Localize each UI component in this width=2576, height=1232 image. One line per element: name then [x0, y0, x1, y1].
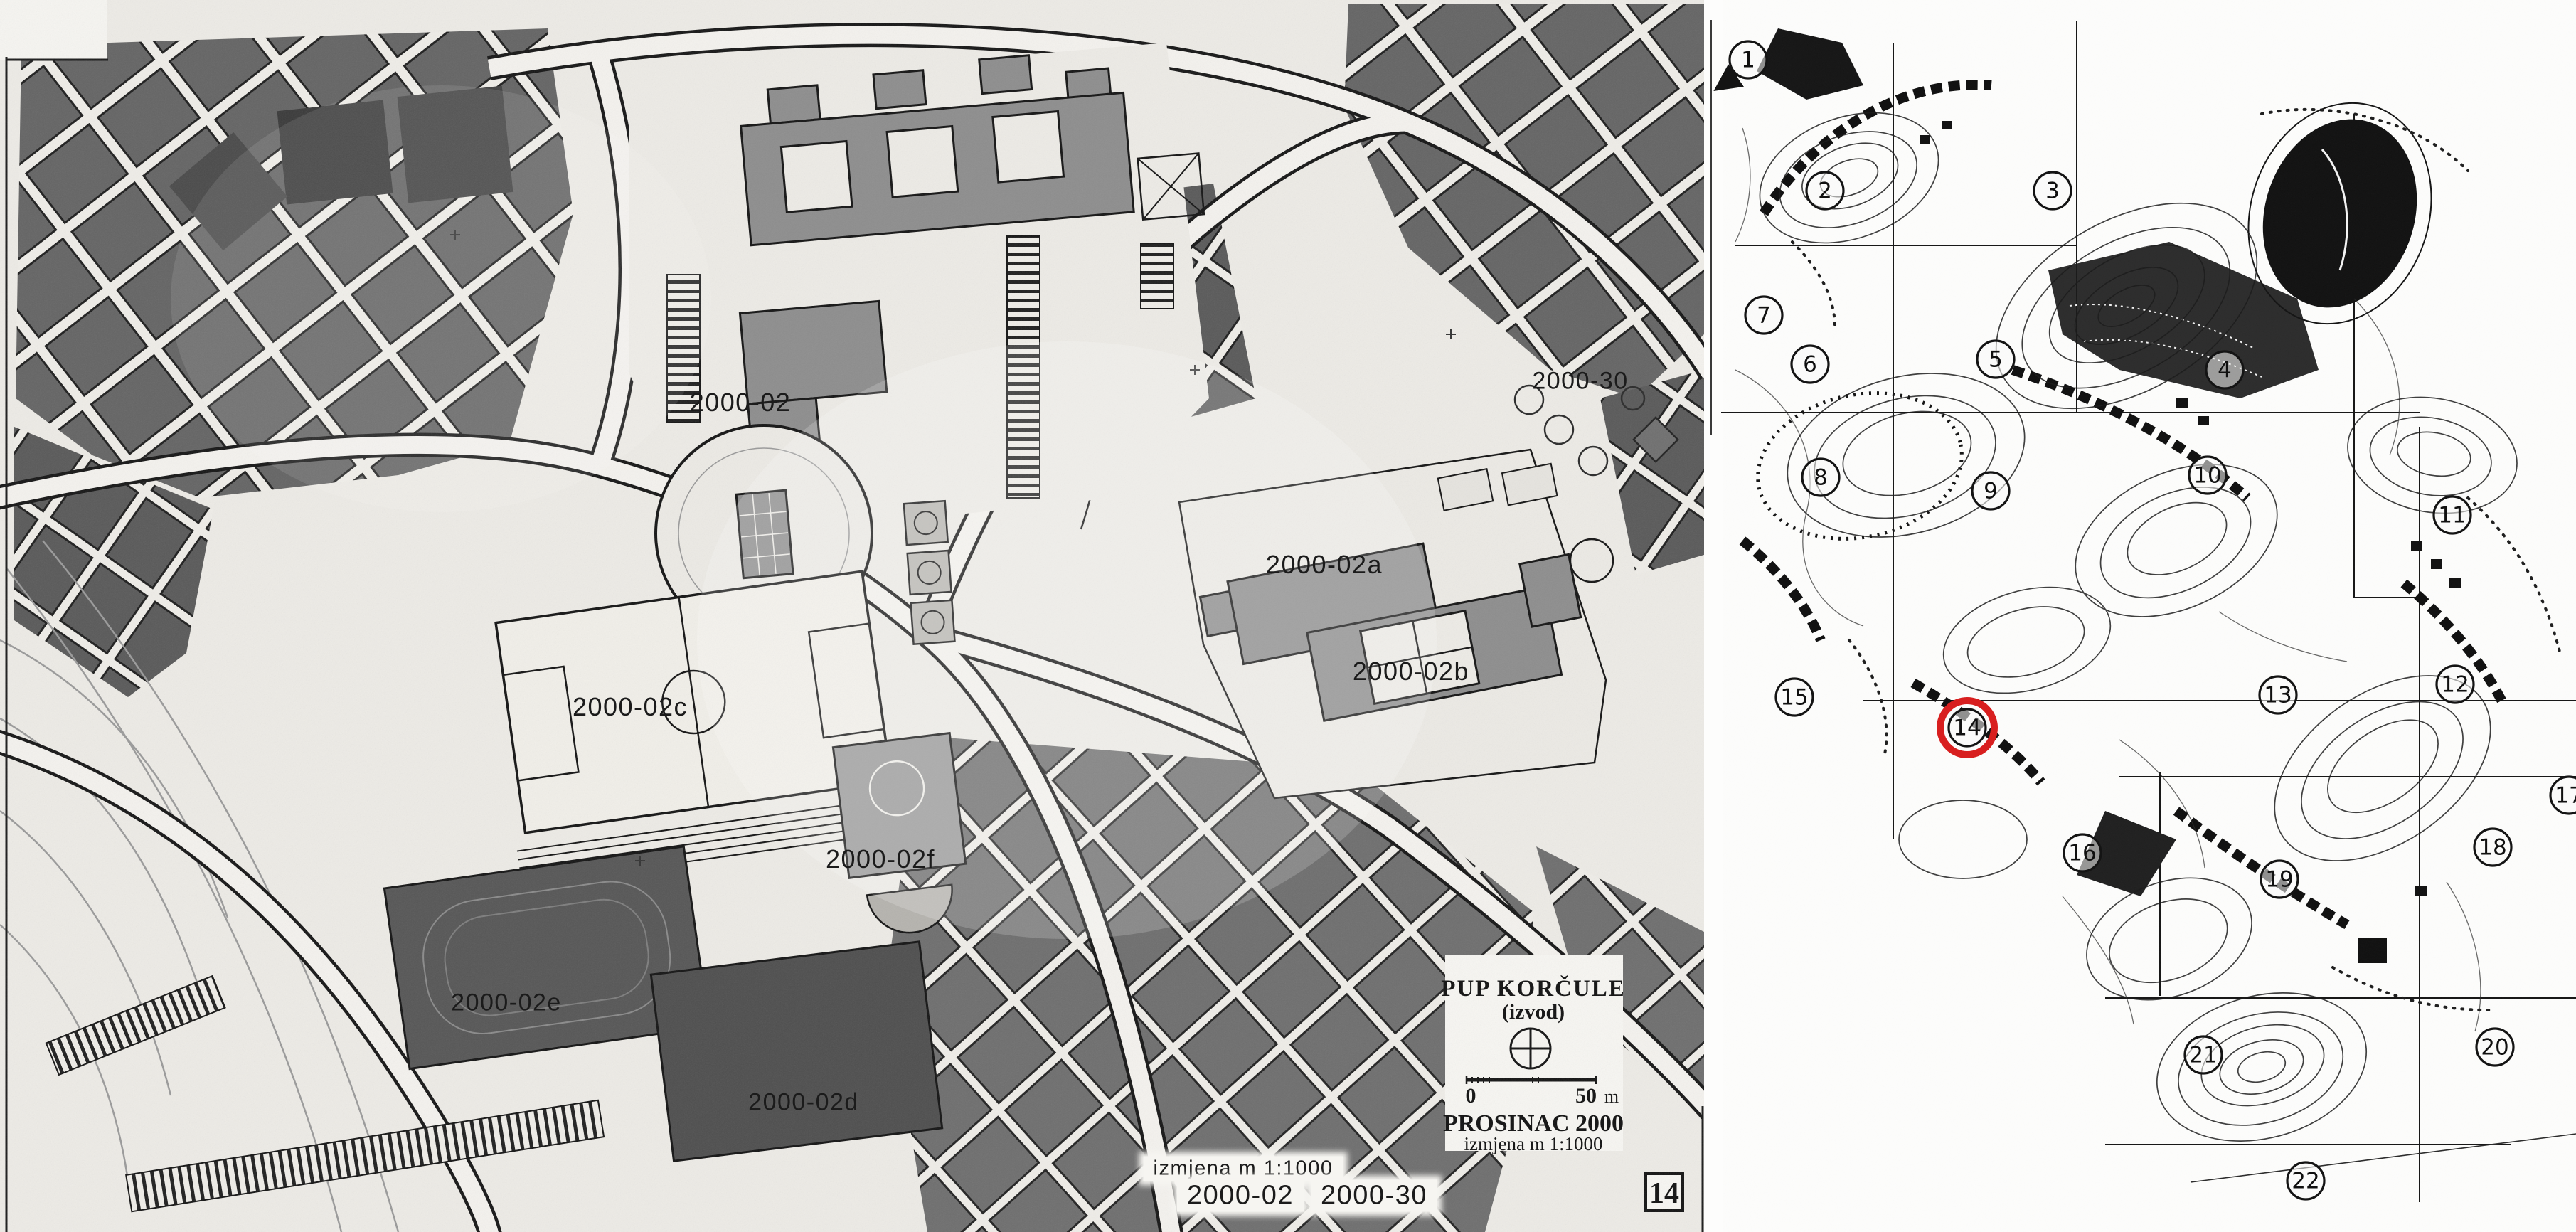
index-section-2: 2	[1806, 172, 1843, 209]
svg-text:15: 15	[1780, 685, 1808, 711]
svg-text:5: 5	[1989, 347, 2003, 373]
index-section-4: 4	[2206, 351, 2243, 388]
parcel-label-2000-02e: 2000-02e	[451, 989, 562, 1017]
svg-text:2: 2	[1818, 179, 1832, 204]
svg-text:11: 11	[2438, 503, 2466, 529]
svg-text:19: 19	[2265, 867, 2293, 893]
parcel-label-2000-02c: 2000-02c	[573, 692, 688, 722]
parcel-label-izmjenam11000: izmjena m 1:1000	[1144, 1157, 1343, 1181]
svg-text:14: 14	[1953, 716, 1981, 741]
svg-text:1: 1	[1741, 48, 1755, 73]
svg-text:7: 7	[1757, 303, 1771, 329]
gutter	[1704, 0, 1723, 1232]
topo-artwork	[1723, 0, 2576, 1232]
index-section-12: 12	[2437, 666, 2474, 703]
parcel-label-2000-02b: 2000-02b	[1353, 657, 1469, 686]
index-section-6: 6	[1792, 346, 1829, 383]
parcel-label-2000-02d: 2000-02d	[748, 1089, 859, 1117]
svg-text:17: 17	[2555, 783, 2576, 809]
index-map: 12345678910111213141516171819202122	[1711, 0, 2576, 1232]
index-section-17: 17	[2550, 777, 2576, 814]
index-section-15: 15	[1776, 679, 1813, 716]
svg-text:18: 18	[2479, 835, 2506, 861]
parcel-label-2000-30: 2000-30	[1311, 1180, 1437, 1212]
index-section-16: 16	[2064, 834, 2101, 871]
scanned-plan-sheet: PUP KORČULE (izvod) 0 50 m PROSINA	[0, 0, 2576, 1232]
svg-text:9: 9	[1984, 479, 1998, 504]
svg-text:22: 22	[2292, 1169, 2319, 1194]
index-section-13: 13	[2260, 676, 2296, 713]
parcel-label-2000-30: 2000-30	[1532, 368, 1628, 395]
index-section-21: 21	[2185, 1036, 2222, 1073]
svg-text:4: 4	[2218, 358, 2232, 383]
parcel-label-2000-02a: 2000-02a	[1266, 550, 1383, 580]
index-section-9: 9	[1972, 472, 2009, 509]
index-section-10: 10	[2189, 457, 2226, 494]
city-plan-map: PUP KORČULE (izvod) 0 50 m PROSINA	[0, 0, 1710, 1232]
plan-artwork: PUP KORČULE (izvod) 0 50 m PROSINA	[0, 0, 2576, 1232]
svg-text:10: 10	[2193, 463, 2221, 489]
svg-text:16: 16	[2068, 841, 2096, 866]
index-section-18: 18	[2474, 829, 2511, 866]
index-section-19: 19	[2261, 861, 2298, 898]
svg-text:8: 8	[1814, 465, 1828, 491]
svg-text:6: 6	[1803, 352, 1817, 378]
svg-text:12: 12	[2441, 672, 2469, 698]
index-section-5: 5	[1977, 341, 2014, 378]
parcel-label-2000-02: 2000-02	[690, 388, 792, 418]
index-section-8: 8	[1802, 459, 1839, 496]
index-section-7: 7	[1745, 297, 1782, 334]
index-section-14: 14	[1940, 701, 1994, 755]
parcel-label-2000-02f: 2000-02f	[826, 844, 935, 874]
svg-text:20: 20	[2481, 1035, 2508, 1061]
svg-text:21: 21	[2189, 1043, 2217, 1068]
index-section-22: 22	[2287, 1162, 2324, 1199]
index-section-11: 11	[2434, 496, 2471, 533]
parcel-label-2000-02: 2000-02	[1177, 1180, 1304, 1212]
index-section-3: 3	[2034, 172, 2071, 209]
svg-text:3: 3	[2045, 179, 2060, 204]
svg-text:13: 13	[2264, 683, 2292, 708]
index-section-20: 20	[2476, 1029, 2513, 1066]
